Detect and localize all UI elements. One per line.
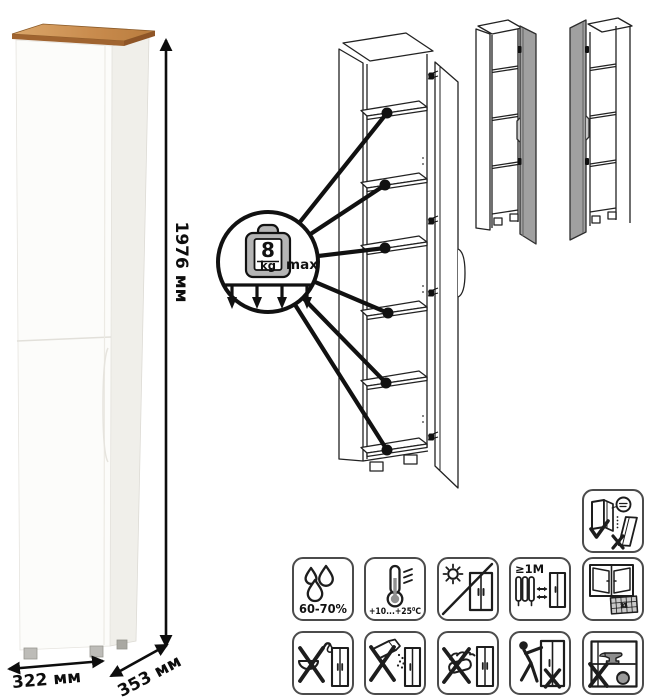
open-door	[435, 62, 465, 488]
no-scraping-icon	[437, 631, 499, 695]
svg-text:kg: kg	[260, 259, 276, 273]
exploded-cabinet	[339, 33, 465, 488]
door-variants	[468, 6, 648, 256]
weight-icon: 8 kg	[246, 225, 290, 277]
no-dragging-icon	[509, 631, 571, 695]
temperature-icon: +10...+25⁰C	[364, 557, 426, 621]
cabinet-photo	[12, 24, 155, 659]
door-variant-left-hinged	[570, 18, 632, 240]
heat-distance-icon: ≥1М	[509, 557, 571, 621]
max-label: max	[286, 257, 318, 273]
svg-text:60-70%: 60-70%	[299, 601, 347, 616]
no-wet-cleaning-icon	[292, 631, 354, 695]
svg-text:≥1М: ≥1М	[515, 562, 544, 576]
no-abrasive-powder-icon	[364, 631, 426, 695]
shelf-load-callout: 8 kg max	[218, 212, 318, 312]
anti-tip-wall-mount-icon	[582, 489, 644, 553]
product-sheet: 1976 мм 322 мм 353 мм	[0, 0, 648, 700]
exploded-view: 8 kg max	[210, 18, 470, 518]
callout-dots	[380, 108, 394, 456]
door-variant-right-hinged	[476, 20, 536, 244]
humidity-icon: 60-70%	[292, 557, 354, 621]
product-photo: 1976 мм 322 мм 353 мм	[0, 0, 220, 700]
ventilation-icon: 21	[582, 557, 644, 621]
shelves	[361, 101, 427, 457]
height-dimension-label: 1976 мм	[171, 221, 191, 302]
care-icon-grid: 60-70% +10...+25⁰C	[292, 557, 644, 695]
svg-text:21: 21	[620, 603, 627, 609]
no-direct-sunlight-icon	[437, 557, 499, 621]
no-overload-icon	[582, 631, 644, 695]
depth-dimension-label: 353 мм	[114, 652, 184, 700]
svg-text:+10...+25⁰C: +10...+25⁰C	[369, 607, 421, 617]
width-dimension-label: 322 мм	[11, 667, 82, 693]
